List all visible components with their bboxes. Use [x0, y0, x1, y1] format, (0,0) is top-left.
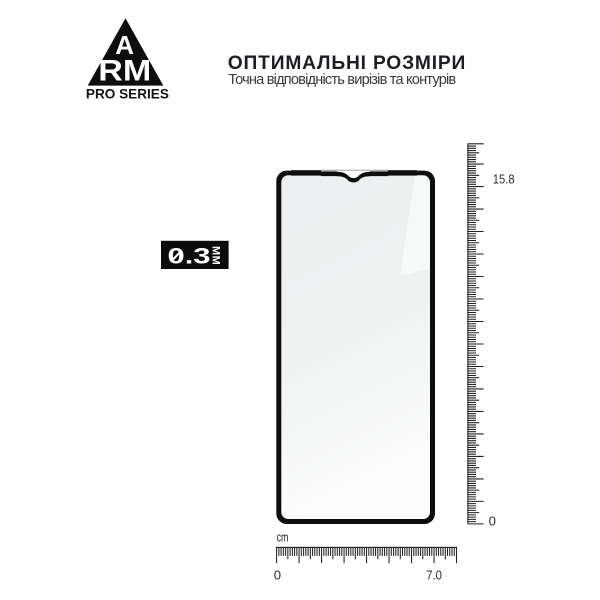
- svg-text:0.3: 0.3: [168, 243, 211, 268]
- svg-text:ММ: ММ: [209, 246, 221, 265]
- svg-text:15.8: 15.8: [493, 172, 515, 187]
- svg-text:ОПТИМАЛЬНІ РОЗМІРИ: ОПТИМАЛЬНІ РОЗМІРИ: [228, 53, 465, 74]
- svg-text:cm: cm: [277, 530, 289, 544]
- svg-text:RM: RM: [98, 55, 151, 88]
- svg-text:Точна відповідність вирізів та: Точна відповідність вирізів та контурів: [228, 72, 456, 88]
- svg-text:PRO SERIES: PRO SERIES: [86, 86, 169, 101]
- svg-text:7.0: 7.0: [426, 568, 442, 583]
- svg-text:0: 0: [274, 568, 281, 583]
- svg-text:0: 0: [489, 514, 496, 529]
